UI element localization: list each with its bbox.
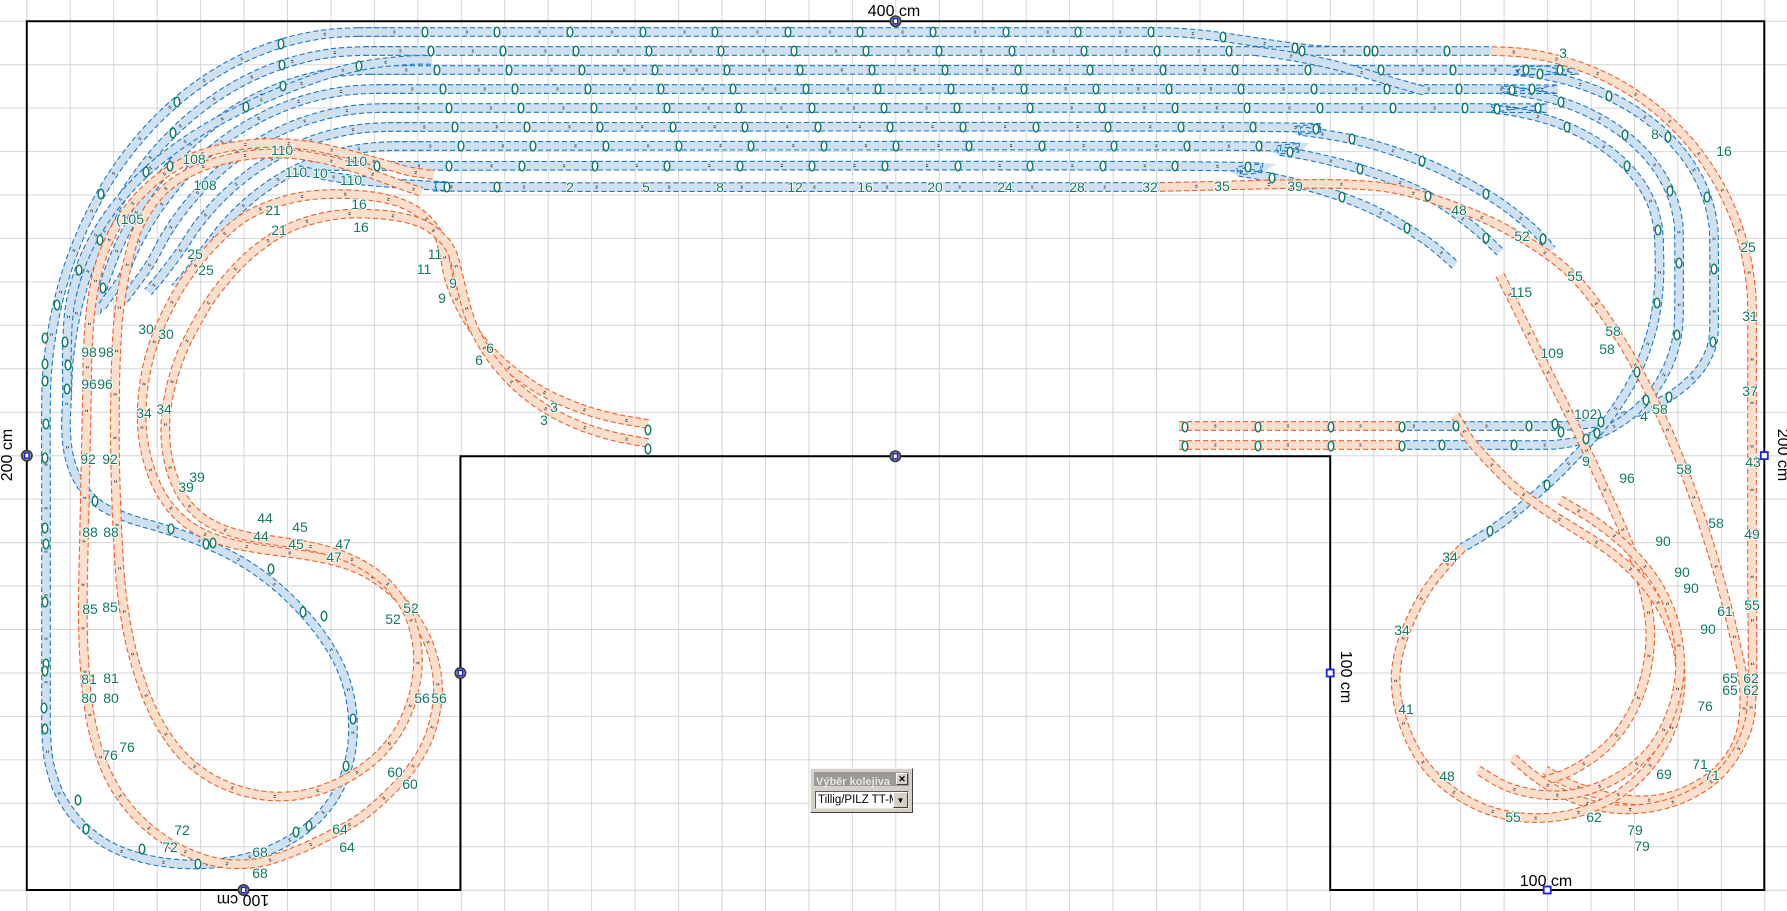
svg-text:35: 35 <box>1214 178 1230 194</box>
svg-text:28: 28 <box>1069 179 1085 195</box>
svg-text:48: 48 <box>1451 202 1467 218</box>
svg-text:400 cm: 400 cm <box>868 3 920 20</box>
svg-text:110: 110 <box>340 172 363 188</box>
svg-text:49: 49 <box>1744 526 1760 542</box>
svg-text:61: 61 <box>1717 603 1733 619</box>
svg-text:80: 80 <box>103 690 119 706</box>
svg-text:109: 109 <box>1540 345 1564 361</box>
svg-text:16: 16 <box>857 179 873 195</box>
svg-text:10: 10 <box>312 165 328 181</box>
svg-text:90: 90 <box>1674 564 1690 580</box>
svg-text:37: 37 <box>1742 383 1758 399</box>
svg-text:34: 34 <box>156 401 172 417</box>
svg-text:34: 34 <box>1442 549 1458 565</box>
svg-text:96: 96 <box>97 376 113 392</box>
svg-text:34: 34 <box>1394 622 1410 638</box>
svg-text:76: 76 <box>119 739 135 755</box>
svg-text:90: 90 <box>1700 621 1716 637</box>
svg-text:47: 47 <box>326 549 342 565</box>
svg-text:9: 9 <box>449 275 457 291</box>
svg-text:110: 110 <box>285 164 308 180</box>
svg-text:58: 58 <box>1708 515 1724 531</box>
svg-text:16: 16 <box>353 219 369 235</box>
svg-text:65: 65 <box>1722 682 1738 698</box>
svg-text:24: 24 <box>997 179 1013 195</box>
svg-text:58: 58 <box>1605 323 1621 339</box>
svg-text:200 cm: 200 cm <box>1774 429 1787 481</box>
svg-text:69: 69 <box>1656 766 1672 782</box>
svg-text:110: 110 <box>271 142 294 158</box>
svg-text:11: 11 <box>417 261 432 277</box>
svg-text:45: 45 <box>292 519 308 535</box>
svg-text:85: 85 <box>82 601 98 617</box>
svg-text:20: 20 <box>927 179 943 195</box>
svg-text:44: 44 <box>253 528 269 544</box>
svg-text:21: 21 <box>271 222 287 238</box>
svg-text:45: 45 <box>288 536 304 552</box>
svg-text:43: 43 <box>1745 454 1761 470</box>
svg-text:90: 90 <box>1655 533 1671 549</box>
svg-text:72: 72 <box>174 822 190 838</box>
svg-text:12: 12 <box>787 179 803 195</box>
svg-text:25: 25 <box>187 246 203 262</box>
svg-text:55: 55 <box>1744 597 1760 613</box>
svg-text:11: 11 <box>428 246 443 262</box>
svg-text:56: 56 <box>431 690 447 706</box>
svg-text:21: 21 <box>265 202 281 218</box>
svg-text:72: 72 <box>162 839 178 855</box>
svg-text:34: 34 <box>136 405 152 421</box>
svg-text:(105: (105 <box>116 211 144 227</box>
svg-text:9: 9 <box>1582 453 1590 469</box>
svg-text:81: 81 <box>81 671 97 687</box>
svg-text:88: 88 <box>103 524 119 540</box>
svg-text:200 cm: 200 cm <box>0 429 16 481</box>
svg-text:81: 81 <box>103 670 119 686</box>
svg-text:32: 32 <box>1142 179 1158 195</box>
svg-text:92: 92 <box>80 451 96 467</box>
svg-text:31: 31 <box>1742 308 1758 324</box>
svg-text:52: 52 <box>403 600 419 616</box>
svg-text:25: 25 <box>198 262 214 278</box>
svg-text:39: 39 <box>178 479 194 495</box>
svg-text:64: 64 <box>339 839 355 855</box>
svg-text:39: 39 <box>1287 178 1303 194</box>
svg-text:68: 68 <box>252 865 268 881</box>
svg-text:58: 58 <box>1652 401 1668 417</box>
svg-text:100 cm: 100 cm <box>217 891 269 908</box>
svg-text:56: 56 <box>414 690 430 706</box>
svg-text:52: 52 <box>1514 228 1530 244</box>
svg-text:3: 3 <box>540 412 548 428</box>
svg-text:108: 108 <box>182 151 206 167</box>
svg-text:79: 79 <box>1627 822 1643 838</box>
svg-text:41: 41 <box>1398 701 1414 717</box>
svg-text:92: 92 <box>102 451 118 467</box>
svg-text:62: 62 <box>1743 682 1759 698</box>
svg-text:71: 71 <box>1704 767 1720 783</box>
svg-text:48: 48 <box>1439 768 1455 784</box>
svg-text:110: 110 <box>345 153 368 169</box>
svg-text:5: 5 <box>642 179 650 195</box>
svg-text:60: 60 <box>387 764 403 780</box>
svg-text:68: 68 <box>252 844 268 860</box>
svg-text:6: 6 <box>486 340 494 356</box>
svg-text:8: 8 <box>716 179 724 195</box>
svg-text:30: 30 <box>138 321 154 337</box>
svg-text:2: 2 <box>566 179 574 195</box>
svg-text:76: 76 <box>102 747 118 763</box>
svg-text:6: 6 <box>475 352 483 368</box>
svg-text:96: 96 <box>81 376 97 392</box>
svg-text:108: 108 <box>193 177 217 193</box>
svg-text:9: 9 <box>438 290 446 306</box>
svg-text:60: 60 <box>402 776 418 792</box>
svg-text:98: 98 <box>81 344 97 360</box>
svg-text:44: 44 <box>257 510 273 526</box>
svg-text:4: 4 <box>1640 408 1648 424</box>
svg-text:80: 80 <box>81 690 97 706</box>
svg-text:30: 30 <box>158 326 174 342</box>
svg-text:85: 85 <box>102 599 118 615</box>
svg-text:79: 79 <box>1634 838 1650 854</box>
svg-text:90: 90 <box>1683 580 1699 596</box>
svg-text:64: 64 <box>332 821 348 837</box>
svg-text:115: 115 <box>1510 284 1533 300</box>
svg-text:55: 55 <box>1567 268 1583 284</box>
svg-text:88: 88 <box>82 524 98 540</box>
svg-text:76: 76 <box>1697 698 1713 714</box>
svg-text:8: 8 <box>1651 126 1659 142</box>
svg-text:58: 58 <box>1676 461 1692 477</box>
svg-text:16: 16 <box>351 196 367 212</box>
svg-text:16: 16 <box>1716 143 1732 159</box>
svg-text:55: 55 <box>1505 809 1521 825</box>
svg-text:52: 52 <box>385 611 401 627</box>
svg-text:100 cm: 100 cm <box>1337 651 1354 703</box>
svg-text:100 cm: 100 cm <box>1520 873 1572 890</box>
svg-text:3: 3 <box>1559 45 1567 61</box>
svg-text:96: 96 <box>1619 470 1635 486</box>
svg-text:58: 58 <box>1599 341 1615 357</box>
svg-text:98: 98 <box>98 344 114 360</box>
svg-text:62: 62 <box>1586 809 1602 825</box>
svg-text:25: 25 <box>1740 239 1756 255</box>
svg-text:3: 3 <box>550 399 558 415</box>
